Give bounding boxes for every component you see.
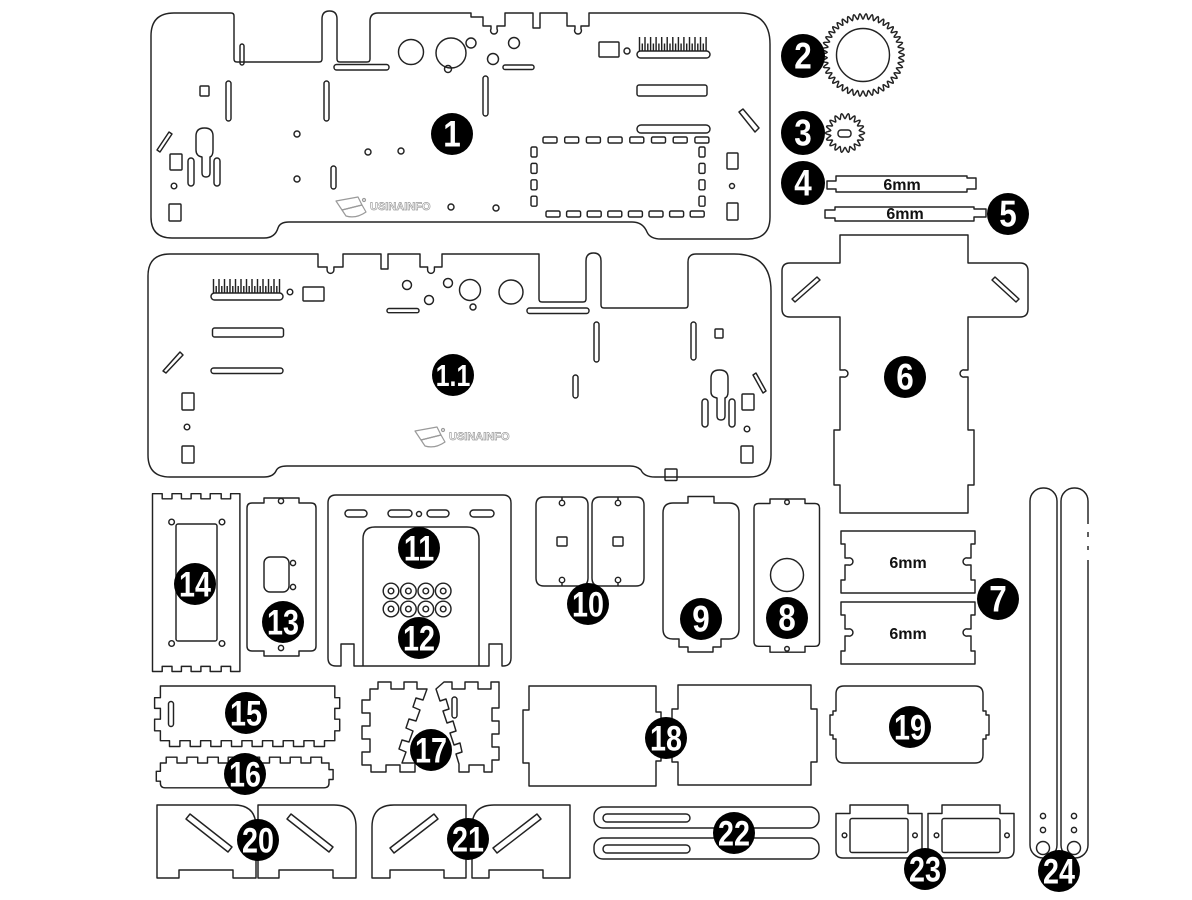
- svg-text:15: 15: [230, 694, 262, 733]
- svg-text:5: 5: [999, 194, 1016, 235]
- svg-text:20: 20: [242, 821, 274, 860]
- svg-text:7: 7: [989, 579, 1006, 620]
- svg-text:1.1: 1.1: [436, 358, 470, 392]
- svg-text:6mm: 6mm: [889, 626, 926, 643]
- svg-text:8: 8: [778, 598, 795, 639]
- svg-text:6: 6: [896, 357, 913, 398]
- svg-text:2: 2: [794, 36, 811, 77]
- svg-text:6mm: 6mm: [883, 177, 920, 194]
- svg-text:10: 10: [572, 585, 604, 624]
- svg-text:11: 11: [404, 529, 434, 568]
- svg-text:22: 22: [718, 814, 750, 853]
- svg-text:16: 16: [229, 755, 261, 794]
- svg-text:4: 4: [794, 163, 811, 204]
- svg-text:14: 14: [179, 565, 211, 604]
- svg-text:6mm: 6mm: [889, 555, 926, 572]
- svg-text:USINAINFO: USINAINFO: [370, 201, 431, 213]
- svg-text:USINAINFO: USINAINFO: [449, 431, 510, 443]
- svg-text:6mm: 6mm: [886, 206, 923, 223]
- svg-text:1: 1: [443, 114, 460, 155]
- svg-text:17: 17: [415, 731, 447, 770]
- svg-text:9: 9: [692, 599, 709, 640]
- svg-text:23: 23: [909, 850, 941, 889]
- svg-text:12: 12: [403, 619, 435, 658]
- svg-text:21: 21: [452, 820, 484, 859]
- svg-text:19: 19: [894, 708, 926, 747]
- svg-text:24: 24: [1043, 852, 1075, 891]
- svg-text:3: 3: [794, 113, 811, 154]
- svg-text:13: 13: [267, 603, 299, 642]
- svg-text:18: 18: [650, 719, 682, 758]
